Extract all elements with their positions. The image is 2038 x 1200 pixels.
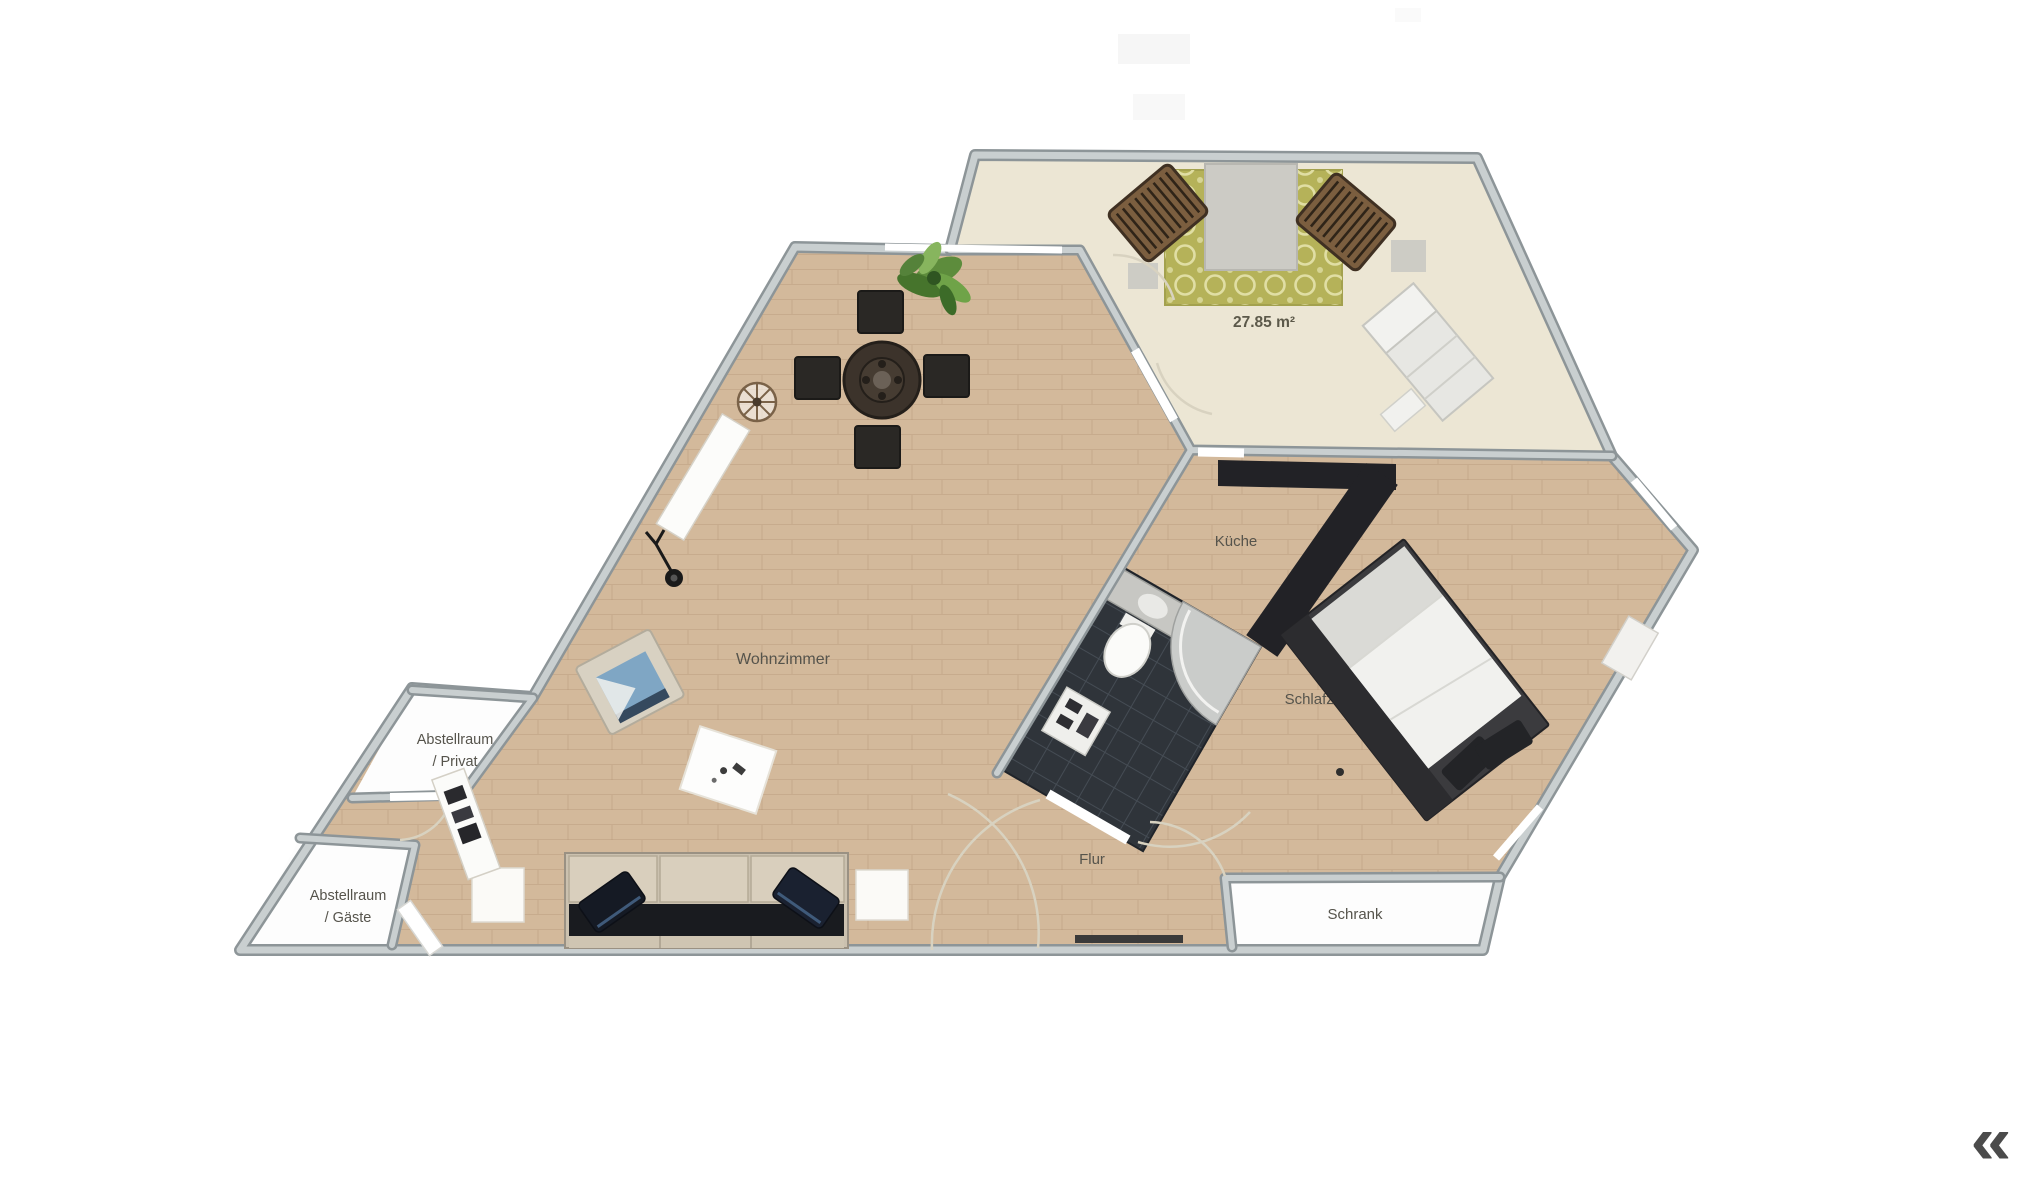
kitchen-opening	[1198, 452, 1244, 453]
storage-private-opening	[390, 796, 442, 797]
label-kitchen: Küche	[1215, 533, 1258, 550]
dining-chair-right	[924, 355, 969, 397]
entrance-door	[1075, 935, 1183, 943]
label-storage-guest-1: Abstellraum	[310, 888, 387, 904]
side-table-right	[856, 870, 908, 920]
label-storage-guest-2: / Gäste	[325, 910, 372, 926]
collapse-panel-button[interactable]: «	[1956, 1101, 2026, 1178]
label-closet: Schrank	[1327, 906, 1383, 923]
label-storage-private-1: Abstellraum	[417, 732, 494, 748]
bedroom-decor-dot	[1336, 768, 1344, 776]
floorplan-canvas: Wohnzimmer Küche Schlafzimmer Flur Schra…	[0, 0, 2038, 1200]
sofa	[565, 853, 848, 948]
ceiling-fan-icon	[738, 383, 776, 421]
label-terrace-area: 27.85 m²	[1233, 314, 1295, 331]
label-living-room: Wohnzimmer	[736, 651, 831, 668]
dining-chair-bottom	[855, 426, 900, 468]
living-window	[885, 247, 1062, 250]
render-artifacts	[1118, 8, 1421, 120]
label-storage-private-2: / Privat	[432, 754, 477, 770]
terrace-side-table-left	[1128, 263, 1158, 289]
label-hallway: Flur	[1079, 851, 1105, 868]
terrace-side-table-right	[1391, 240, 1426, 272]
terrace-table	[1205, 164, 1297, 270]
floorplan-viewer: Wohnzimmer Küche Schlafzimmer Flur Schra…	[0, 0, 2038, 1200]
dining-chair-top	[858, 291, 903, 333]
dining-chair-left	[795, 357, 840, 399]
